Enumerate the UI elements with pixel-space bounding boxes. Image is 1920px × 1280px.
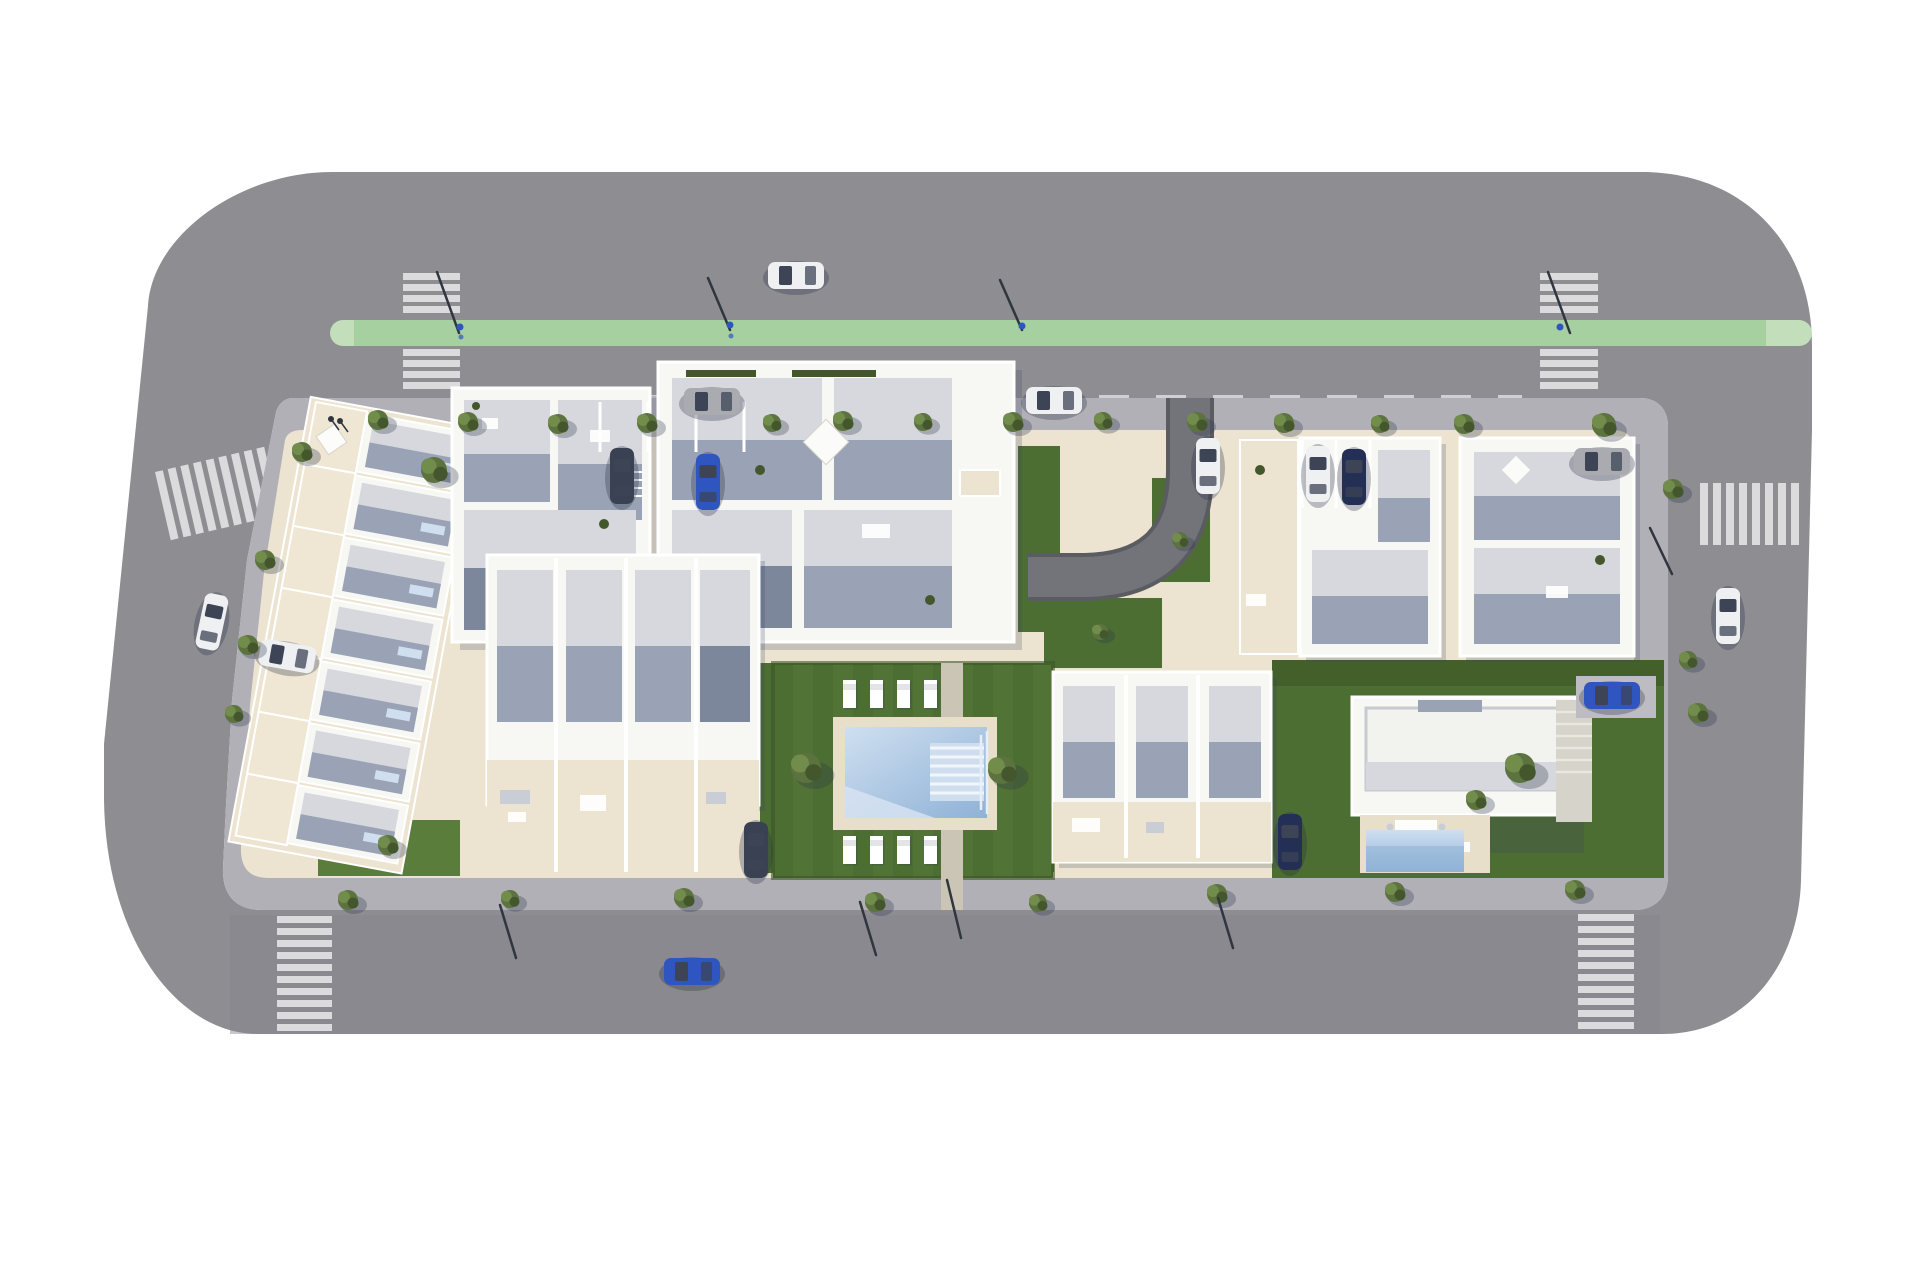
car-navy-f-bay bbox=[1337, 447, 1371, 511]
car-white-driveway bbox=[1191, 436, 1225, 500]
building-d bbox=[1053, 672, 1277, 868]
bike-lane bbox=[330, 320, 1812, 346]
car-navy-d-lane bbox=[1273, 812, 1307, 876]
bottom-street-tint bbox=[230, 915, 1660, 1034]
site-plan-rendering bbox=[0, 0, 1920, 1280]
car-dark-c-lane bbox=[739, 820, 773, 884]
car-white-driving-top bbox=[763, 261, 829, 295]
pool-path-top bbox=[941, 663, 963, 717]
villa-path bbox=[1556, 700, 1592, 822]
car-white-right-street bbox=[1711, 586, 1745, 650]
car-blue-bottom-street bbox=[659, 957, 725, 991]
building-c bbox=[487, 555, 765, 875]
car-blue-bay bbox=[691, 452, 725, 516]
car-blue-villa-pad bbox=[1579, 681, 1645, 715]
car-white-f-bay bbox=[1301, 444, 1335, 508]
car-gray-g-terrace bbox=[1569, 447, 1635, 481]
van-dark-bay bbox=[605, 446, 639, 510]
car-gray-parked-top bbox=[679, 387, 745, 421]
site-plan-svg bbox=[0, 0, 1920, 1280]
car-white-parked-top bbox=[1021, 386, 1087, 420]
